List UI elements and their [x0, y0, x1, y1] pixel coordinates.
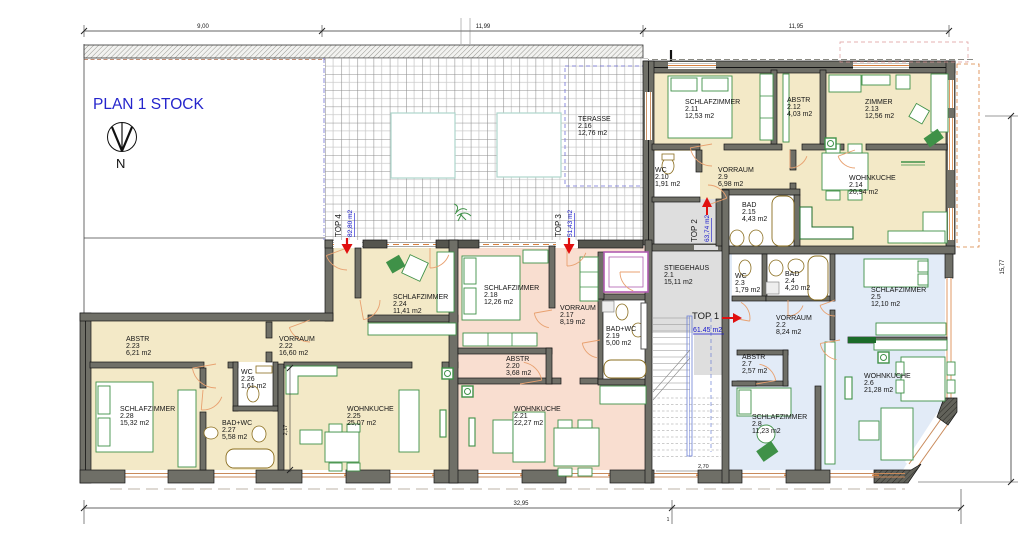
svg-text:2.26: 2.26 — [241, 376, 255, 383]
svg-text:8,19 m2: 8,19 m2 — [560, 319, 585, 326]
svg-text:2.17: 2.17 — [560, 312, 574, 319]
svg-text:11,23 m2: 11,23 m2 — [752, 428, 781, 435]
svg-text:2.13: 2.13 — [865, 106, 879, 113]
svg-text:11,95: 11,95 — [789, 24, 804, 30]
svg-text:BAD+WC: BAD+WC — [222, 420, 252, 427]
svg-text:SCHLAFZIMMER: SCHLAFZIMMER — [871, 287, 926, 294]
svg-text:2.5: 2.5 — [871, 294, 881, 301]
svg-text:2.20: 2.20 — [506, 363, 520, 370]
svg-text:2.10: 2.10 — [655, 174, 669, 181]
svg-text:VORRAUM: VORRAUM — [718, 167, 754, 174]
svg-text:ZIMMER: ZIMMER — [865, 99, 893, 106]
svg-text:PLAN 1 STOCK: PLAN 1 STOCK — [93, 96, 205, 113]
svg-text:2.19: 2.19 — [606, 333, 620, 340]
svg-text:TOP 1: TOP 1 — [692, 311, 719, 322]
svg-text:2.1: 2.1 — [664, 272, 674, 279]
svg-text:15,11 m2: 15,11 m2 — [664, 279, 693, 286]
svg-text:12,53 m2: 12,53 m2 — [685, 113, 714, 120]
svg-text:12,56 m2: 12,56 m2 — [865, 113, 894, 120]
svg-text:2.14: 2.14 — [849, 182, 863, 189]
svg-text:SCHLAFZIMMER: SCHLAFZIMMER — [120, 406, 175, 413]
svg-text:4,20 m2: 4,20 m2 — [785, 285, 810, 292]
svg-text:WC: WC — [241, 369, 253, 376]
svg-text:2.27: 2.27 — [222, 427, 236, 434]
svg-text:5,58 m2: 5,58 m2 — [222, 434, 247, 441]
svg-text:WOHNKUCHE: WOHNKUCHE — [864, 373, 911, 380]
svg-text:4,43 m2: 4,43 m2 — [742, 216, 767, 223]
svg-text:BAD: BAD — [785, 271, 799, 278]
svg-text:12,10 m2: 12,10 m2 — [871, 301, 900, 308]
svg-text:12,26 m2: 12,26 m2 — [484, 299, 513, 306]
svg-text:2.18: 2.18 — [484, 292, 498, 299]
svg-text:2.23: 2.23 — [126, 343, 140, 350]
svg-text:WC: WC — [655, 167, 667, 174]
svg-text:1,91 m2: 1,91 m2 — [655, 181, 680, 188]
svg-text:16,60 m2: 16,60 m2 — [279, 350, 308, 357]
svg-text:WOHNKUCHE: WOHNKUCHE — [514, 406, 561, 413]
svg-text:TOP 3: TOP 3 — [554, 214, 563, 237]
svg-text:4,03 m2: 4,03 m2 — [787, 111, 812, 118]
svg-text:2.28: 2.28 — [120, 413, 134, 420]
svg-text:2.2: 2.2 — [776, 322, 786, 329]
svg-text:2.6: 2.6 — [864, 380, 874, 387]
svg-text:25,07 m2: 25,07 m2 — [347, 420, 376, 427]
svg-text:3,68 m2: 3,68 m2 — [506, 370, 531, 377]
svg-text:2.22: 2.22 — [279, 343, 293, 350]
svg-text:BAD: BAD — [742, 202, 756, 209]
svg-text:VORRAUM: VORRAUM — [279, 336, 315, 343]
svg-text:82,80 m2: 82,80 m2 — [347, 210, 354, 237]
svg-text:2.12: 2.12 — [787, 104, 801, 111]
svg-text:SCHLAFZIMMER: SCHLAFZIMMER — [484, 285, 539, 292]
svg-text:ABSTR: ABSTR — [126, 336, 149, 343]
svg-text:15,77: 15,77 — [1000, 259, 1006, 275]
svg-text:SCHLAFZIMMER: SCHLAFZIMMER — [685, 99, 740, 106]
svg-text:61.45 m2: 61.45 m2 — [693, 327, 722, 334]
svg-text:12,76 m2: 12,76 m2 — [578, 130, 607, 137]
svg-text:ABSTR: ABSTR — [742, 354, 765, 361]
svg-text:1,79 m2: 1,79 m2 — [735, 287, 760, 294]
svg-text:63,74 m2: 63,74 m2 — [704, 215, 711, 242]
svg-text:VORRAUM: VORRAUM — [560, 305, 596, 312]
svg-text:22,27 m2: 22,27 m2 — [514, 420, 543, 427]
svg-text:2.24: 2.24 — [393, 301, 407, 308]
svg-text:6,98 m2: 6,98 m2 — [718, 181, 743, 188]
svg-text:ABSTR: ABSTR — [787, 97, 810, 104]
svg-text:2.15: 2.15 — [742, 209, 756, 216]
svg-text:2.4: 2.4 — [785, 278, 795, 285]
svg-text:2.9: 2.9 — [718, 174, 728, 181]
svg-text:2.11: 2.11 — [685, 106, 698, 113]
svg-text:SCHLAFZIMMER: SCHLAFZIMMER — [393, 294, 448, 301]
svg-text:2.8: 2.8 — [752, 421, 762, 428]
svg-text:ABSTR: ABSTR — [506, 356, 529, 363]
svg-text:11,99: 11,99 — [476, 24, 491, 30]
svg-text:BAD+WC: BAD+WC — [606, 326, 636, 333]
svg-text:2,70: 2,70 — [698, 464, 709, 470]
svg-text:2,17: 2,17 — [283, 425, 289, 436]
svg-text:N: N — [116, 156, 125, 171]
svg-text:32,95: 32,95 — [513, 501, 529, 507]
svg-text:VORRAUM: VORRAUM — [776, 315, 812, 322]
svg-text:5,00 m2: 5,00 m2 — [606, 340, 631, 347]
svg-text:1: 1 — [667, 517, 670, 523]
svg-text:SCHLAFZIMMER: SCHLAFZIMMER — [752, 414, 807, 421]
svg-text:2.21: 2.21 — [514, 413, 528, 420]
svg-text:2.7: 2.7 — [742, 361, 752, 368]
svg-text:15,32 m2: 15,32 m2 — [120, 420, 149, 427]
svg-text:2.16: 2.16 — [578, 123, 592, 130]
svg-text:8,24 m2: 8,24 m2 — [776, 329, 801, 336]
svg-text:STIEGEHAUS: STIEGEHAUS — [664, 265, 709, 272]
svg-text:WOHNKUCHE: WOHNKUCHE — [849, 175, 896, 182]
svg-text:2.3: 2.3 — [735, 280, 745, 287]
svg-text:2,57 m2: 2,57 m2 — [742, 368, 767, 375]
svg-text:WC: WC — [735, 273, 747, 280]
svg-text:TOP 4: TOP 4 — [334, 214, 343, 237]
svg-text:6,21 m2: 6,21 m2 — [126, 350, 151, 357]
svg-text:TOP 2: TOP 2 — [690, 219, 699, 242]
svg-text:9,00: 9,00 — [197, 24, 209, 30]
svg-text:11,41 m2: 11,41 m2 — [393, 308, 422, 315]
svg-text:1,61 m2: 1,61 m2 — [241, 383, 266, 390]
svg-text:21,28 m2: 21,28 m2 — [864, 387, 893, 394]
svg-text:51,43 m2: 51,43 m2 — [567, 210, 574, 237]
svg-text:2.25: 2.25 — [347, 413, 361, 420]
svg-text:WOHNKUCHE: WOHNKUCHE — [347, 406, 394, 413]
svg-text:20,94 m2: 20,94 m2 — [849, 189, 878, 196]
svg-text:TERASSE: TERASSE — [578, 116, 611, 123]
